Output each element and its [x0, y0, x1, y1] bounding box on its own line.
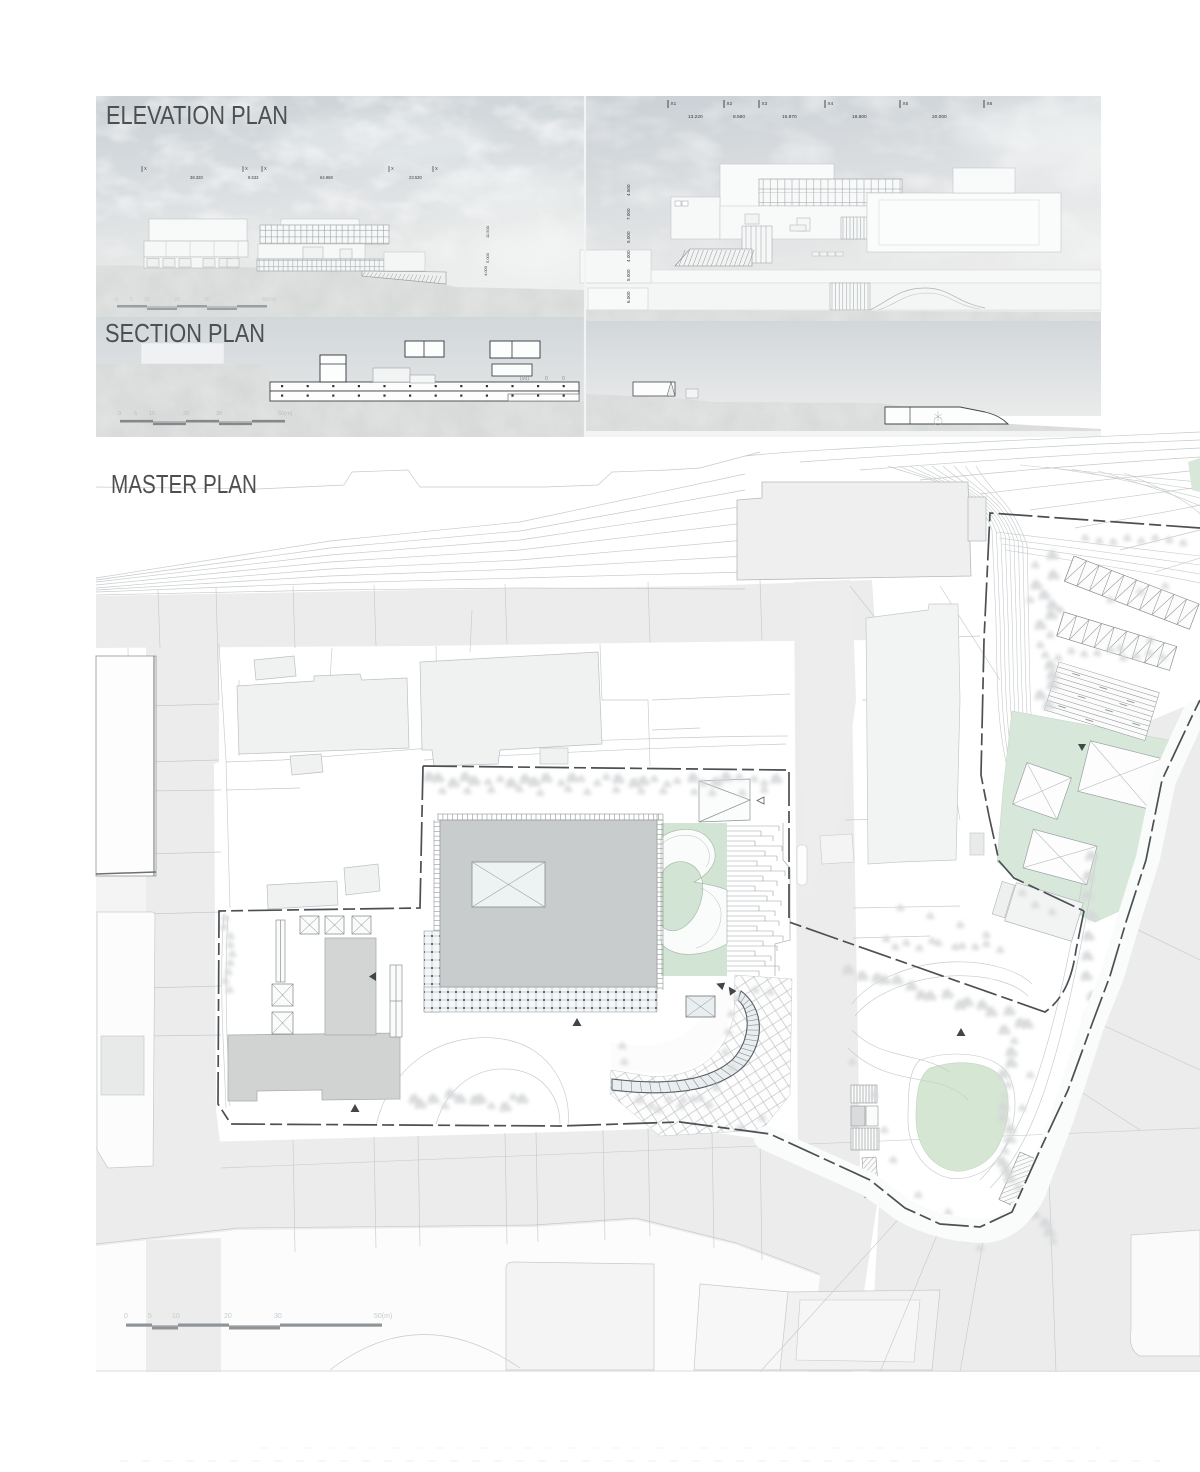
svg-text:4.000: 4.000 — [483, 265, 488, 276]
svg-text:X3: X3 — [762, 101, 768, 106]
svg-text:X1: X1 — [671, 101, 677, 106]
svg-text:5: 5 — [148, 1313, 152, 1320]
svg-text:50(m): 50(m) — [374, 1313, 392, 1320]
svg-text:20: 20 — [174, 297, 180, 303]
svg-text:5.000: 5.000 — [626, 231, 631, 243]
svg-text:X4: X4 — [828, 101, 834, 106]
svg-text:10: 10 — [144, 297, 150, 303]
svg-text:64.988: 64.988 — [320, 175, 333, 180]
svg-text:50(m): 50(m) — [278, 411, 293, 417]
svg-text:20.000: 20.000 — [932, 114, 947, 120]
svg-text:5: 5 — [130, 297, 133, 303]
svg-text:23.530: 23.530 — [409, 175, 422, 180]
svg-text:20: 20 — [224, 1313, 232, 1320]
svg-text:8.533: 8.533 — [248, 175, 259, 180]
svg-text:SECTION PLAN: SECTION PLAN — [105, 318, 265, 348]
svg-text:6.000: 6.000 — [626, 291, 631, 303]
svg-text:0: 0 — [562, 376, 565, 382]
svg-text:5.000: 5.000 — [626, 269, 631, 281]
svg-text:38.320: 38.320 — [190, 175, 203, 180]
svg-text:X: X — [144, 166, 147, 171]
svg-text:X5: X5 — [903, 101, 909, 106]
svg-text:8.560: 8.560 — [733, 114, 745, 120]
svg-text:0: 0 — [545, 376, 548, 382]
svg-text:10: 10 — [172, 1313, 180, 1320]
svg-text:18.800: 18.800 — [852, 114, 867, 120]
svg-text:15.970: 15.970 — [782, 114, 797, 120]
svg-text:30: 30 — [204, 297, 210, 303]
svg-text:0: 0 — [115, 297, 118, 303]
svg-text:50(m): 50(m) — [262, 297, 277, 303]
svg-text:X2: X2 — [727, 101, 733, 106]
svg-text:5: 5 — [134, 411, 137, 417]
svg-text:(50): (50) — [520, 376, 529, 382]
svg-text:5.000: 5.000 — [485, 252, 490, 263]
svg-text:7.000: 7.000 — [626, 208, 631, 220]
svg-text:4.500: 4.500 — [626, 184, 631, 196]
svg-text:30: 30 — [216, 411, 222, 417]
svg-text:X6: X6 — [987, 101, 993, 106]
svg-text:0: 0 — [118, 411, 121, 417]
svg-text:20: 20 — [183, 411, 189, 417]
svg-text:X: X — [264, 166, 267, 171]
svg-text:ELEVATION PLAN: ELEVATION PLAN — [106, 100, 288, 130]
svg-text:4.000: 4.000 — [626, 250, 631, 262]
svg-text:X: X — [391, 166, 394, 171]
svg-text:13.220: 13.220 — [688, 114, 703, 120]
svg-text:0: 0 — [124, 1313, 128, 1320]
svg-text:30: 30 — [274, 1313, 282, 1320]
svg-text:11.500: 11.500 — [485, 225, 490, 238]
svg-text:X: X — [435, 166, 438, 171]
svg-text:X: X — [245, 166, 248, 171]
svg-text:10: 10 — [149, 411, 155, 417]
svg-text:MASTER PLAN: MASTER PLAN — [111, 469, 257, 499]
